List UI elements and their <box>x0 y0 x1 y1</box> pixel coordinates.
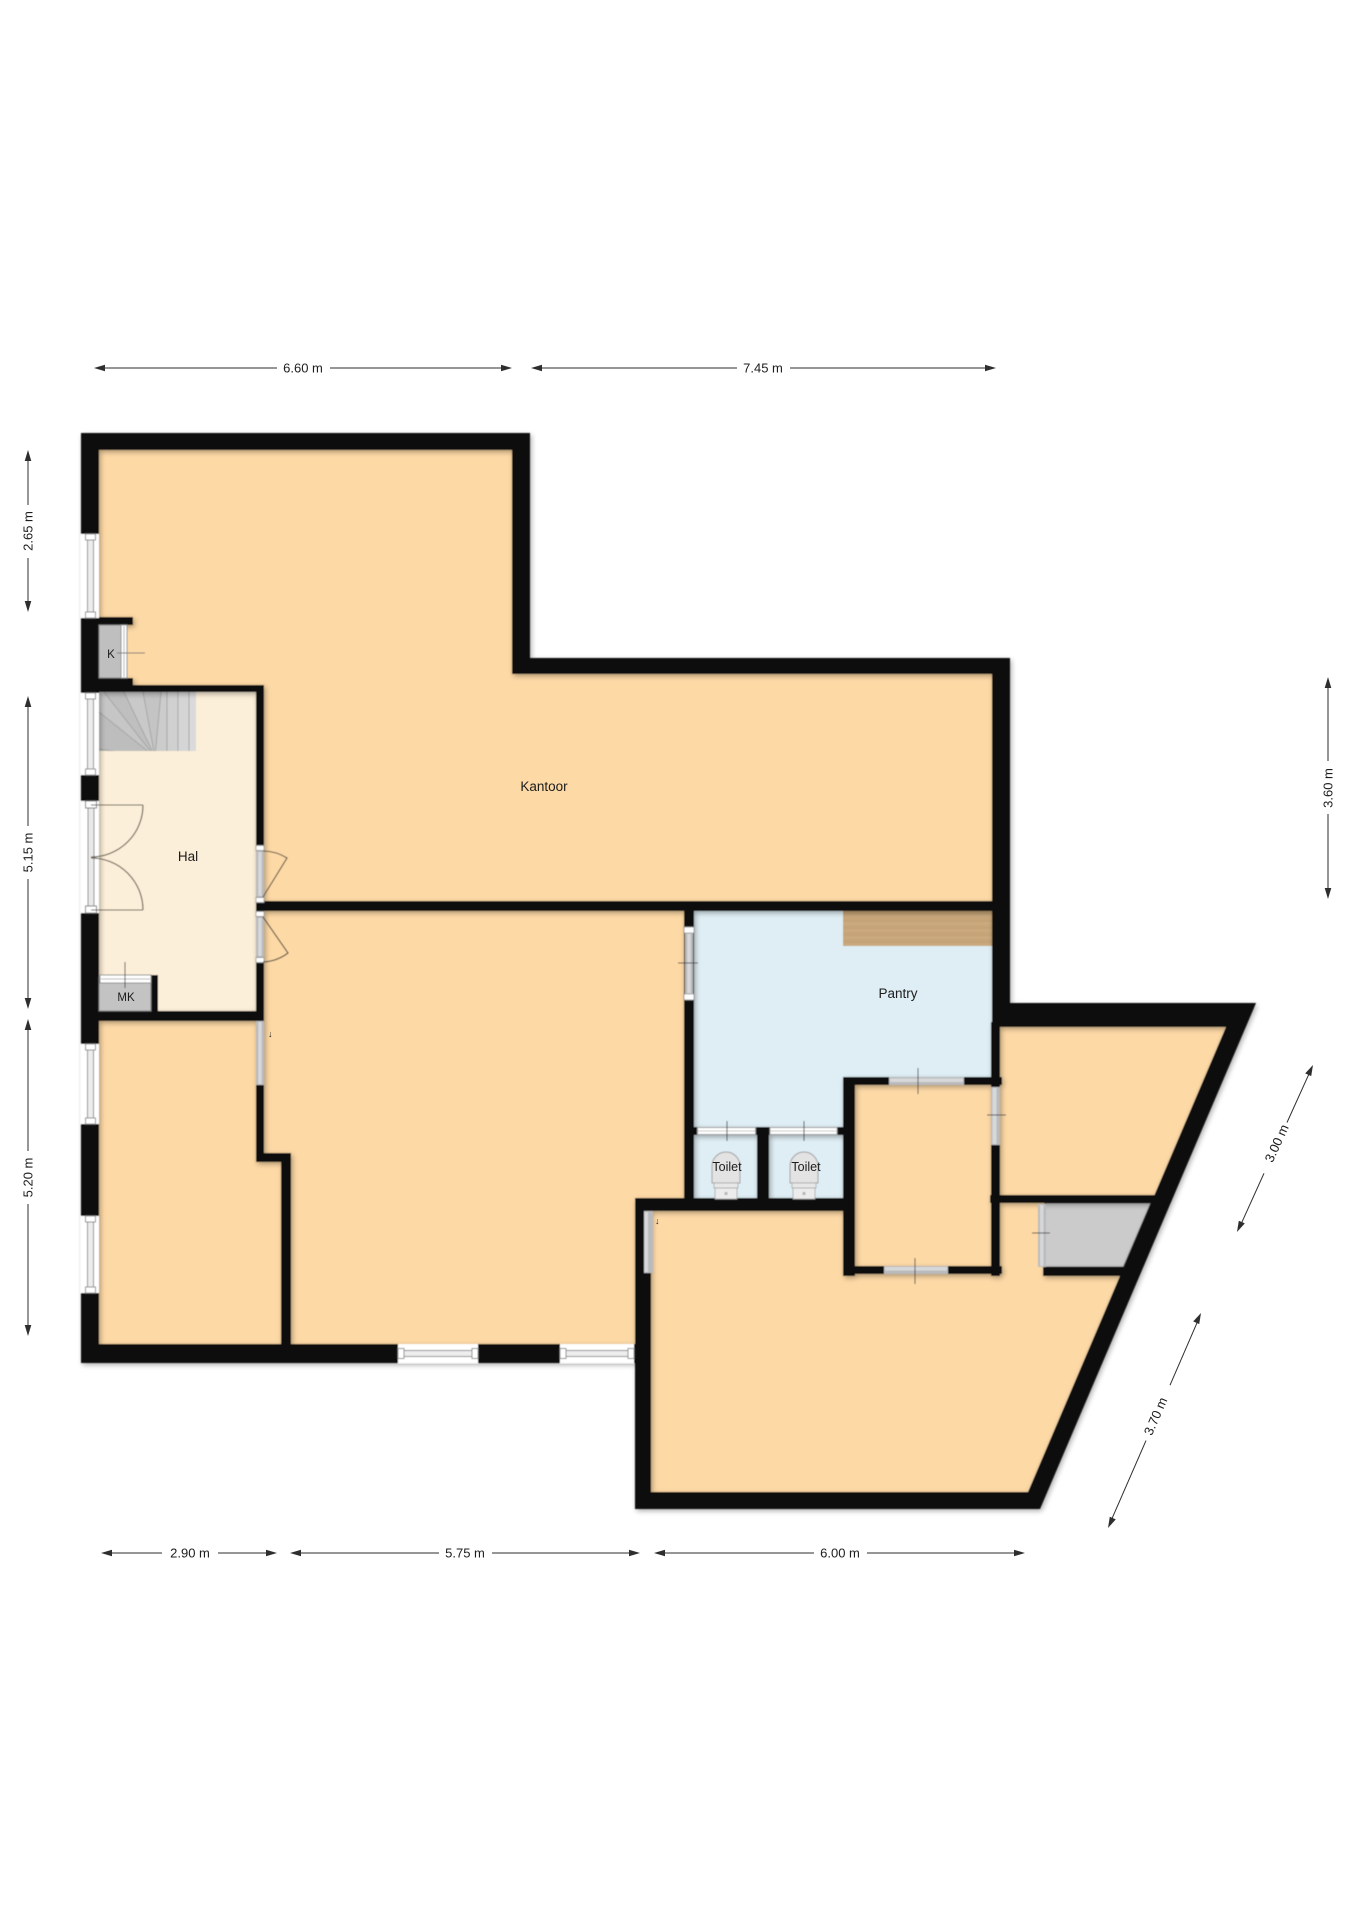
svg-text:5.15 m: 5.15 m <box>21 833 36 873</box>
svg-text:2.65 m: 2.65 m <box>21 511 36 551</box>
svg-text:Hal: Hal <box>178 849 198 864</box>
svg-text:K: K <box>107 649 115 661</box>
svg-text:Pantry: Pantry <box>878 986 917 1001</box>
svg-text:MK: MK <box>117 992 135 1004</box>
svg-text:3.60 m: 3.60 m <box>1321 768 1336 808</box>
svg-text:Toilet: Toilet <box>712 1160 742 1174</box>
svg-text:7.45 m: 7.45 m <box>743 361 783 376</box>
svg-text:↓: ↓ <box>655 1216 660 1226</box>
svg-text:Toilet: Toilet <box>791 1160 821 1174</box>
svg-text:↓: ↓ <box>268 1029 273 1039</box>
svg-text:Kantoor: Kantoor <box>520 779 568 794</box>
svg-text:6.00 m: 6.00 m <box>820 1546 860 1561</box>
svg-text:6.60 m: 6.60 m <box>283 361 323 376</box>
svg-text:5.75 m: 5.75 m <box>445 1546 485 1561</box>
svg-text:2.90 m: 2.90 m <box>170 1546 210 1561</box>
svg-text:3.00 m: 3.00 m <box>1262 1122 1292 1164</box>
svg-text:3.70 m: 3.70 m <box>1141 1395 1171 1437</box>
svg-text:5.20 m: 5.20 m <box>21 1158 36 1198</box>
